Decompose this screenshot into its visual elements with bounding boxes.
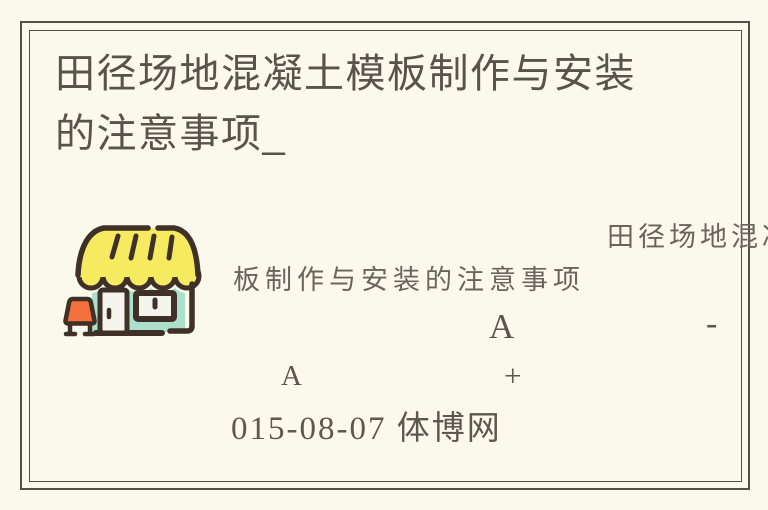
font-increase-sign[interactable]: + <box>504 358 521 394</box>
awning-body <box>79 228 198 277</box>
sign-legs <box>66 325 94 334</box>
page-title-line2: 的注意事项_ <box>55 104 705 164</box>
page-title-line1: 田径场地混凝土模板制作与安装 <box>55 44 705 104</box>
storefront-icon <box>62 220 202 352</box>
watermark-line2: 板制作与安装的注意事项 <box>233 258 585 297</box>
date-source-line: 015-08-07 体博网 <box>231 401 502 449</box>
store-door <box>100 290 127 333</box>
font-increase-button[interactable]: A <box>281 360 302 393</box>
page-title: 田径场地混凝土模板制作与安装 的注意事项_ <box>55 44 705 164</box>
watermark-line1: 田径场地混凝 <box>607 215 768 254</box>
font-decrease-button[interactable]: A <box>489 307 514 347</box>
font-decrease-sign[interactable]: - <box>706 305 717 343</box>
sign-board <box>65 299 94 324</box>
